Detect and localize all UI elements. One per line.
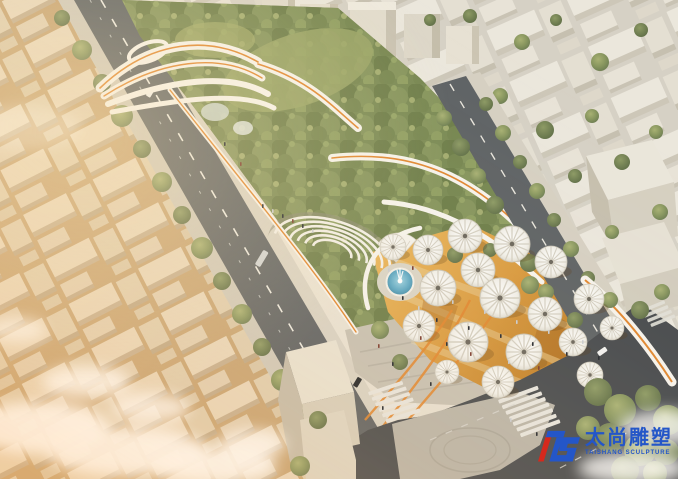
- watermark: 太尚雕塑 TAISHANG SCULPTURE: [538, 428, 673, 466]
- taishang-logo-icon: [538, 428, 580, 466]
- brand-name-cn: 太尚雕塑: [585, 428, 673, 448]
- rendering-canvas: 太尚雕塑 TAISHANG SCULPTURE: [0, 0, 678, 479]
- brand-name-en: TAISHANG SCULPTURE: [585, 450, 673, 456]
- sun-glow-overlay: [0, 0, 678, 479]
- scene-svg: [0, 0, 678, 479]
- logo-top-bar: [546, 431, 566, 437]
